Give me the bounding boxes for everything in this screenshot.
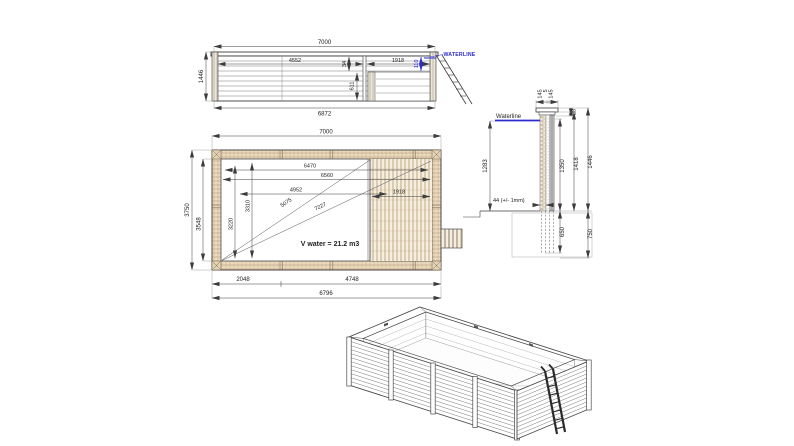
elevation-ladder bbox=[436, 55, 472, 104]
partition-post bbox=[363, 56, 366, 101]
dim-label-plan-3310: 3310 bbox=[246, 200, 252, 212]
side-panel-box bbox=[368, 72, 430, 101]
dim-label-elev-1918: 1918 bbox=[392, 58, 404, 64]
dim-label-sect-1350: 1350 bbox=[560, 159, 566, 173]
section-wall bbox=[536, 108, 558, 253]
dim-label-sect-145b: 145 bbox=[549, 89, 555, 98]
dim-label-sect-28: 28 bbox=[572, 109, 578, 115]
dim-label-plan-6560: 6560 bbox=[321, 173, 333, 179]
iso-corner-post bbox=[587, 360, 592, 410]
drawing-canvas: 7000 6872 1446 4552 34 611 1918 110 WATE… bbox=[0, 0, 794, 446]
pool-technical-drawing-sheet: 7000 6872 1446 4552 34 611 1918 110 WATE… bbox=[0, 0, 794, 446]
waterline-caption-section: Waterline bbox=[496, 114, 522, 120]
dim-label-plan-3548: 3548 bbox=[197, 217, 203, 231]
dim-label-plan-7000: 7000 bbox=[319, 130, 333, 136]
dim-label-plan-3220: 3220 bbox=[229, 218, 235, 230]
side-elevation-view: 7000 6872 1446 4552 34 611 1918 110 WATE… bbox=[199, 40, 476, 118]
tolerance-label: 44 (+/- 1mm) bbox=[493, 198, 525, 204]
left-end-post bbox=[212, 52, 218, 101]
section-pit-outline bbox=[512, 213, 592, 257]
elevation-pool-body bbox=[211, 52, 472, 104]
water-volume-label: V water = 21.2 m3 bbox=[301, 241, 360, 248]
dim-label-elev-1446: 1446 bbox=[199, 69, 205, 83]
dim-label-elev-34: 34 bbox=[342, 61, 348, 67]
dim-label-elev-4552: 4552 bbox=[289, 58, 301, 64]
dim-label-elev-7000: 7000 bbox=[318, 40, 332, 46]
waterline-caption-elevation: WATERLINE bbox=[444, 52, 476, 58]
plan-ladder bbox=[441, 229, 462, 248]
dim-label-sect-1283: 1283 bbox=[483, 159, 489, 173]
dim-label-plan-4748: 4748 bbox=[345, 277, 359, 283]
panel-post bbox=[368, 72, 375, 101]
dim-label-elev-6872: 6872 bbox=[318, 112, 332, 118]
dim-label-elev-110: 110 bbox=[414, 60, 420, 69]
dim-label-elev-611: 611 bbox=[350, 82, 356, 91]
plan-deck-area bbox=[368, 159, 432, 261]
dim-label-plan-4952: 4952 bbox=[290, 188, 302, 194]
dim-label-plan-1918: 1918 bbox=[393, 190, 405, 196]
dim-label-sect-1418: 1418 bbox=[574, 157, 580, 171]
dim-label-sect-1446: 1446 bbox=[588, 155, 594, 169]
cross-section-view: 145 5 145 28 1350 1418 1446 650 750 1283… bbox=[463, 89, 594, 258]
isometric-view bbox=[347, 307, 591, 440]
right-end-post bbox=[430, 52, 436, 101]
dim-label-plan-6470: 6470 bbox=[304, 164, 316, 170]
section-ground bbox=[463, 211, 592, 257]
plan-view: 7000 3750 3548 6470 6560 4952 5075 7227 … bbox=[185, 130, 462, 299]
dim-label-sect-750: 750 bbox=[588, 228, 594, 239]
dim-label-plan-6796: 6796 bbox=[319, 291, 333, 297]
dim-label-plan-2048: 2048 bbox=[236, 277, 250, 283]
dim-label-plan-3750: 3750 bbox=[185, 203, 191, 217]
dim-label-sect-650: 650 bbox=[560, 226, 566, 237]
